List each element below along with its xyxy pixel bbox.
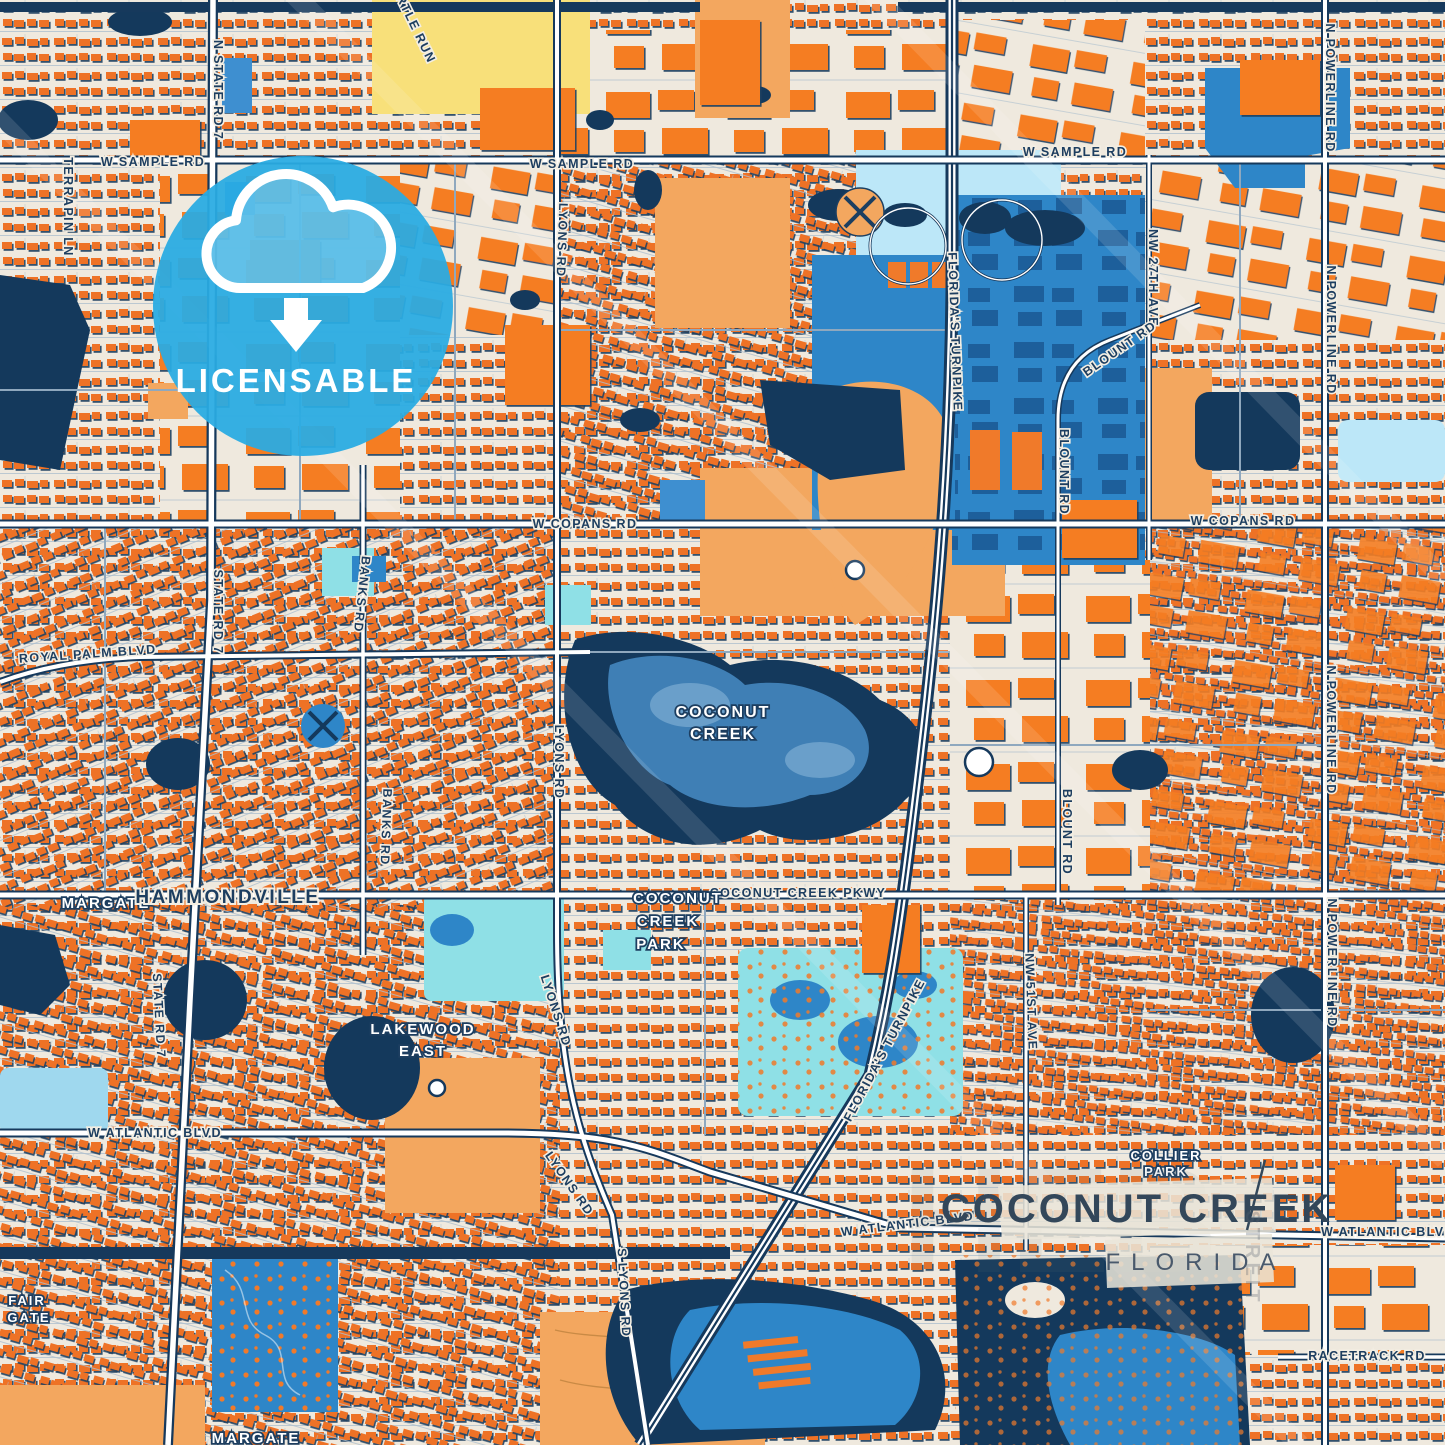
- place-label: COCONUT: [676, 704, 771, 721]
- road-label: W SAMPLE RD: [1023, 145, 1127, 159]
- road-label: W ATLANTIC BLVD: [88, 1126, 222, 1140]
- place-label: EAST: [399, 1043, 447, 1060]
- road-label: BANKS RD: [378, 788, 395, 866]
- map-poster: W SAMPLE RD W SAMPLE RD W SAMPLE RD W CO…: [0, 0, 1445, 1445]
- road-label: RACETRACK RD: [1308, 1349, 1426, 1363]
- road-label: LYONS RD: [552, 725, 566, 800]
- road-label: N POWERLINE RD: [1325, 898, 1339, 1027]
- road-label: BLOUNT RD: [1060, 789, 1074, 875]
- badge-label: LICENSABLE: [176, 362, 417, 399]
- city-title: COCONUT CREEK: [941, 1187, 1333, 1231]
- road-label: TERRAPIN LN: [61, 157, 75, 256]
- place-label: COCONUT: [633, 890, 723, 907]
- watermark: STREIT: [1241, 1210, 1263, 1305]
- place-label: MARGATE: [212, 1430, 301, 1445]
- place-label: HAMMONDVILLE: [135, 887, 320, 908]
- road-label: W SAMPLE RD: [101, 155, 205, 169]
- road-label: W COPANS RD: [533, 517, 638, 531]
- road-label: COCONUT CREEK PKWY: [710, 886, 887, 900]
- road-label: W COPANS RD: [1191, 514, 1296, 528]
- license-badge: LICENSABLE: [153, 156, 453, 456]
- road-label: N STATE RD 7: [211, 40, 225, 140]
- place-label: CREEK: [637, 913, 700, 930]
- road-label: LYONS RD: [554, 203, 571, 278]
- road-label: W ATLANTIC BLVD: [1321, 1225, 1445, 1239]
- road-label: NW 27TH AVE: [1146, 229, 1160, 327]
- place-label: GATE: [7, 1310, 50, 1325]
- place-label: FAIR: [8, 1293, 46, 1308]
- map-canvas: W SAMPLE RD W SAMPLE RD W SAMPLE RD W CO…: [0, 0, 1445, 1445]
- road-label: STATE RD 7: [211, 569, 225, 654]
- road-label: N POWERLINE RD: [1324, 265, 1338, 394]
- place-label: PARK: [636, 936, 685, 953]
- road-label: N POWERLINE RD: [1324, 665, 1338, 794]
- road-label: BLOUNT RD: [1057, 429, 1071, 515]
- place-label: CREEK: [690, 726, 756, 743]
- place-label: LAKEWOOD: [370, 1021, 475, 1038]
- road-label: W SAMPLE RD: [530, 157, 634, 171]
- road-label: N POWERLINE RD: [1323, 23, 1337, 152]
